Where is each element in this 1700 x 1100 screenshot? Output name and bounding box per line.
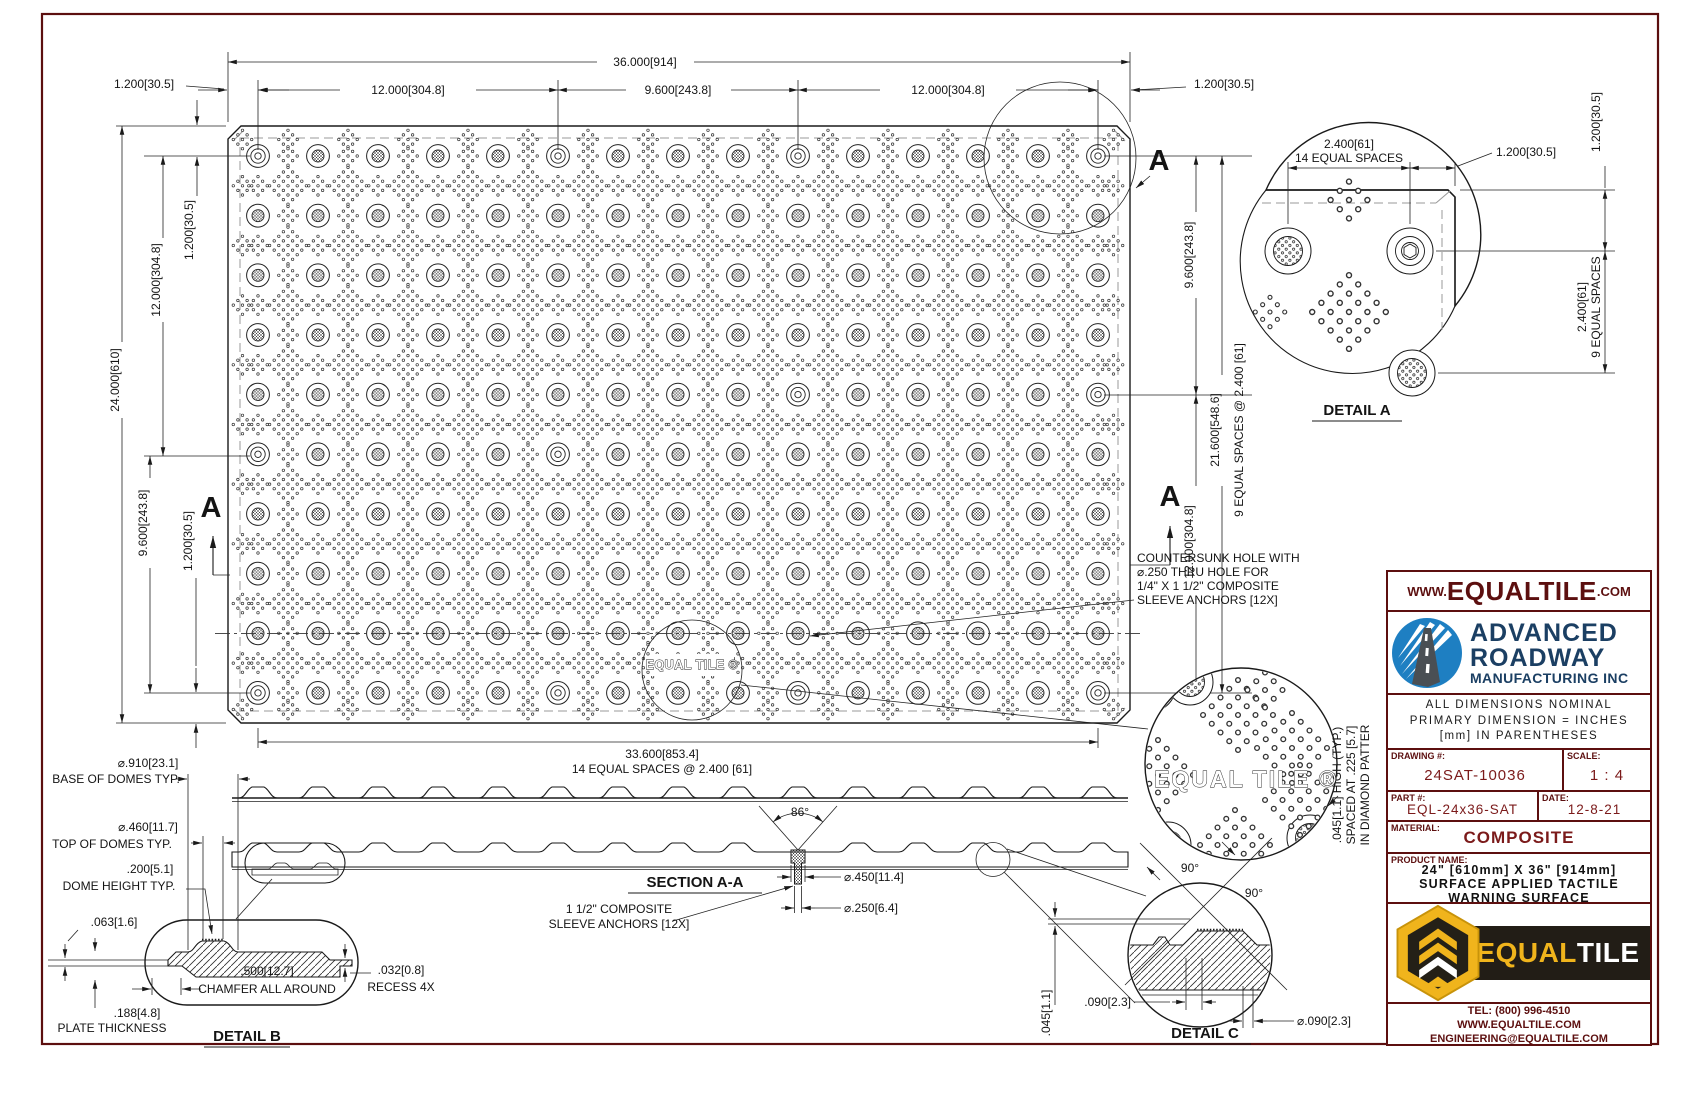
contact-web: WWW.EQUALTILE.COM: [1457, 1019, 1581, 1033]
part-no-label: PART #:: [1391, 793, 1425, 803]
web-prefix: WWW.: [1407, 584, 1447, 599]
dim-span-96-left: 9.600[243.8]: [136, 490, 150, 557]
detail-b-lip: .063[1.6]: [91, 915, 138, 929]
detail-b-dome-height: .200[5.1]: [127, 862, 174, 876]
detail-a-dim-2400-v: 2.400[61]: [1575, 282, 1589, 332]
detail-b-base-dia: ⌀.910[23.1]: [118, 756, 179, 770]
part-no-value: EQL-24x36-SAT: [1388, 802, 1537, 820]
company-logo: [1390, 616, 1464, 690]
countersunk-note-line3: 1/4" X 1 1/2" COMPOSITE: [1137, 579, 1279, 593]
detail-b-plate-label: PLATE THICKNESS: [58, 1021, 167, 1035]
contact-block: TEL: (800) 996-4510 WWW.EQUALTILE.COM EN…: [1388, 1004, 1650, 1048]
scale-label: SCALE:: [1567, 751, 1601, 761]
date-value: 12-8-21: [1539, 802, 1650, 820]
detail-a-dim-1200-v: 1.200[30.5]: [1589, 92, 1603, 152]
web-name: EQUALTILE: [1447, 576, 1597, 607]
detail-a-dim-margin: 1.200[30.5]: [1496, 145, 1556, 159]
detail-b-chamfer-label: CHAMFER ALL AROUND: [198, 982, 336, 996]
detail-c-angle2: 90°: [1245, 886, 1263, 900]
equaltile-logo-block: EQUALTILE: [1388, 904, 1650, 1004]
product-line2: SURFACE APPLIED TACTILE: [1388, 878, 1650, 892]
company-line1: ADVANCED: [1470, 621, 1628, 646]
section-dia-thru: ⌀.250[6.4]: [844, 901, 898, 915]
micro-note-line3: IN DIAMOND PATTER: [1358, 724, 1372, 845]
dim-span-12-1: 12.000[304.8]: [371, 83, 444, 97]
equaltile-hex-logo: [1390, 904, 1486, 1002]
section-dia-csk: ⌀.450[11.4]: [844, 870, 904, 884]
section-angle: 86°: [791, 805, 809, 819]
detail-b-chamfer: .500[12.7]: [240, 964, 293, 978]
section-anchor-note2: SLEEVE ANCHORS [12X]: [549, 917, 690, 931]
magnifier-view: EQUAL TILE ®: [1121, 659, 1338, 892]
detail-c-dim-height: .045[1.1]: [1039, 990, 1053, 1037]
detail-b-recess-label: RECESS 4X: [367, 980, 434, 994]
section-letter-left: A: [201, 492, 222, 524]
web-suffix: .COM: [1597, 584, 1631, 599]
detail-c-angle1: 90°: [1181, 861, 1199, 875]
drawing-sheet: EQUAL TILE ® 36.000[914] 1.200[30.5] 12.…: [0, 0, 1700, 1100]
dim-margin-top-left: 1.200[30.5]: [114, 77, 174, 91]
dim-9-equal-spaces: 9 EQUAL SPACES @ 2.400 [61]: [1232, 343, 1246, 517]
dome-grid: [232, 129, 1124, 720]
section-aa-view: 86° ⌀.450[11.4] ⌀.250[6.4] SECTION A-A 1…: [232, 787, 1128, 931]
product-line1: 24" [610mm] X 36" [914mm]: [1388, 864, 1650, 878]
date-label: DATE:: [1542, 793, 1569, 803]
dim-margin-top-right: 1.200[30.5]: [1194, 77, 1254, 91]
countersunk-note-line4: SLEEVE ANCHORS [12X]: [1137, 593, 1278, 607]
countersunk-note-line1: COUNTERSUNK HOLE WITH: [1137, 551, 1300, 565]
equaltile-banner: EQUALTILE: [1466, 926, 1650, 980]
dim-bottom-span: 33.600[853.4]: [625, 747, 698, 761]
dim-note-line3: [mm] IN PARENTHESES: [1440, 729, 1599, 745]
micro-note-line2: SPACED AT .225 [5.7]: [1344, 726, 1358, 845]
dim-note-line2: PRIMARY DIMENSION = INCHES: [1410, 714, 1629, 730]
detail-a-callout-circle: [984, 82, 1136, 234]
detail-c-source-circle: [976, 843, 1010, 877]
detail-a-dim-9spaces: 9 EQUAL SPACES: [1589, 256, 1603, 357]
dim-note-line1: ALL DIMENSIONS NOMINAL: [1426, 698, 1613, 714]
company-line3: MANUFACTURING INC: [1470, 671, 1628, 685]
contact-email: ENGINEERING@EQUALTILE.COM: [1430, 1033, 1608, 1047]
dim-margin-left-bottom: 1.200[30.5]: [181, 511, 195, 571]
dim-margin-left-top: 1.200[30.5]: [182, 200, 196, 260]
dim-span-12-2: 12.000[304.8]: [911, 83, 984, 97]
detail-c-title: DETAIL C: [1171, 1025, 1239, 1042]
dim-span-96-top: 9.600[243.8]: [645, 83, 712, 97]
logo-equal-text: EQUAL: [1476, 937, 1577, 969]
dim-span-96-right: 9.600[243.8]: [1182, 222, 1196, 289]
tile-embossed-mark: EQUAL TILE ®: [646, 658, 739, 672]
detail-b-recess: .032[0.8]: [378, 963, 425, 977]
company-block: ADVANCED ROADWAY MANUFACTURING INC: [1388, 612, 1650, 695]
title-block: WWW.EQUALTILE.COM ADVANCED ROADWAY MANUF…: [1386, 570, 1652, 1046]
detail-a-letter: A: [1149, 145, 1170, 177]
detail-a-dim-2400: 2.400[61]: [1324, 137, 1374, 151]
scale-value: 1 : 4: [1564, 767, 1650, 790]
dim-span-216-right: 21.600[548.6]: [1208, 393, 1222, 466]
dim-bottom-spaces: 14 EQUAL SPACES @ 2.400 [61]: [572, 762, 752, 776]
detail-b-view: ⌀.910[23.1] BASE OF DOMES TYP. ⌀.460[11.…: [48, 756, 435, 1047]
plan-view: EQUAL TILE ®: [215, 126, 1148, 729]
detail-b-base-label: BASE OF DOMES TYP.: [52, 772, 180, 786]
contact-tel: TEL: (800) 996-4510: [1468, 1005, 1571, 1019]
logo-tile-text: TILE: [1577, 937, 1640, 969]
dim-span-12-left: 12.000[304.8]: [149, 243, 163, 316]
countersunk-note: COUNTERSUNK HOLE WITH ⌀.250 THRU HOLE FO…: [810, 551, 1300, 636]
drawing-no-value: 24SAT-10036: [1388, 767, 1562, 790]
section-aa-title: SECTION A-A: [647, 874, 744, 891]
company-line2: ROADWAY: [1470, 646, 1628, 671]
detail-c-dim-dia: ⌀.090[2.3]: [1297, 1014, 1351, 1028]
title-block-website: WWW.EQUALTILE.COM: [1388, 572, 1650, 612]
material-label: MATERIAL:: [1391, 823, 1440, 833]
detail-b-top-dia: ⌀.460[11.7]: [118, 820, 178, 834]
detail-c-dim-width: .090[2.3]: [1084, 995, 1131, 1009]
detail-a-view: 2.400[61] 14 EQUAL SPACES 1.200[30.5] 1.…: [1240, 92, 1615, 421]
detail-a-title: DETAIL A: [1323, 402, 1390, 419]
product-name-block: PRODUCT NAME: 24" [610mm] X 36" [914mm] …: [1388, 854, 1650, 904]
detail-b-dome-height-label: DOME HEIGHT TYP.: [63, 879, 176, 893]
dim-overall-width: 36.000[914]: [613, 55, 676, 69]
countersunk-note-line2: ⌀.250 THRU HOLE FOR: [1137, 565, 1269, 579]
magnifier-embossed-mark: EQUAL TILE ®: [1154, 766, 1338, 792]
detail-b-top-label: TOP OF DOMES TYP.: [52, 837, 172, 851]
dimension-note: ALL DIMENSIONS NOMINAL PRIMARY DIMENSION…: [1388, 695, 1650, 750]
detail-b-title: DETAIL B: [213, 1028, 281, 1045]
detail-a-dim-14spaces: 14 EQUAL SPACES: [1295, 151, 1403, 165]
drawing-no-label: DRAWING #:: [1391, 751, 1445, 761]
section-letter-right: A: [1160, 481, 1181, 513]
dim-overall-height: 24.000[610]: [108, 348, 122, 411]
section-anchor-note1: 1 1/2" COMPOSITE: [566, 902, 672, 916]
detail-b-plate: .188[4.8]: [114, 1006, 161, 1020]
product-name-label: PRODUCT NAME:: [1391, 855, 1468, 865]
